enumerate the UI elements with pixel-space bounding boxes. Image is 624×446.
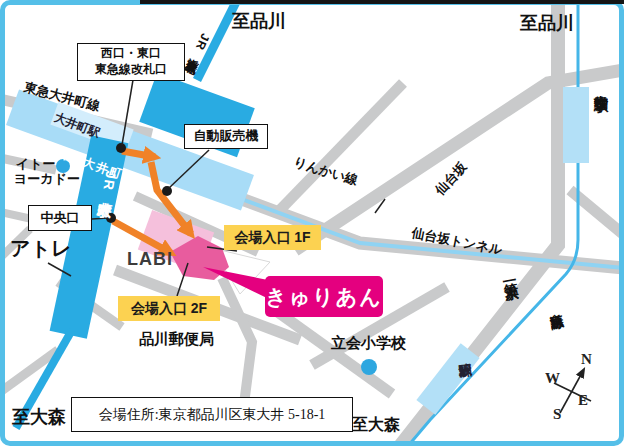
ito-yokado-label-line1: イトー bbox=[16, 157, 56, 171]
to-shinagawa-right-label: 至品川 bbox=[520, 14, 574, 34]
venue-address-box: 会場住所:東京都品川区東大井 5-18-1 bbox=[71, 397, 353, 432]
labi-label: LABI bbox=[127, 250, 173, 270]
to-omori-center-label: 至大森 bbox=[352, 416, 400, 434]
ito-yokado-label-line2: ヨーカドー bbox=[14, 172, 80, 186]
compass-e: E bbox=[578, 392, 588, 409]
aomono-yokocho-station-block bbox=[563, 87, 589, 163]
entrance-2f-label: 会場入口 2F bbox=[118, 296, 220, 321]
compass-n: N bbox=[581, 351, 592, 368]
to-omori-left-label: 至大森 bbox=[12, 408, 66, 428]
post-office-label: 品川郵便局 bbox=[139, 331, 214, 348]
aomono-yokocho-station-label: 青物横丁駅 bbox=[593, 84, 608, 176]
vending-machine-callout: 自動販売機 bbox=[184, 124, 268, 149]
entrance-1f-label: 会場入口 1F bbox=[224, 225, 321, 250]
tachiai-school-dot bbox=[361, 359, 377, 375]
to-shinagawa-center-label: 至品川 bbox=[232, 12, 286, 32]
access-map: 至品川 至品川 至大森 至大森 JR京浜東北線 東急大井町線 大井町駅 りんかい… bbox=[0, 0, 624, 446]
tachiai-school-label: 立会小学校 bbox=[331, 335, 406, 352]
west-east-exit-callout: 西口・東口 東急線改札口 bbox=[77, 43, 185, 81]
top-border-bar bbox=[140, 0, 624, 4]
venue-logo: きゅりあん bbox=[265, 276, 383, 317]
atre-label: アトレ bbox=[10, 237, 71, 259]
compass-w: W bbox=[545, 370, 560, 387]
west-east-exit-line2: 東急線改札口 bbox=[95, 62, 167, 78]
road-daiichi-keihin bbox=[400, 0, 558, 446]
compass-s: S bbox=[553, 406, 561, 423]
west-east-exit-line1: 西口・東口 bbox=[101, 46, 161, 62]
central-exit-callout: 中央口 bbox=[28, 205, 92, 231]
